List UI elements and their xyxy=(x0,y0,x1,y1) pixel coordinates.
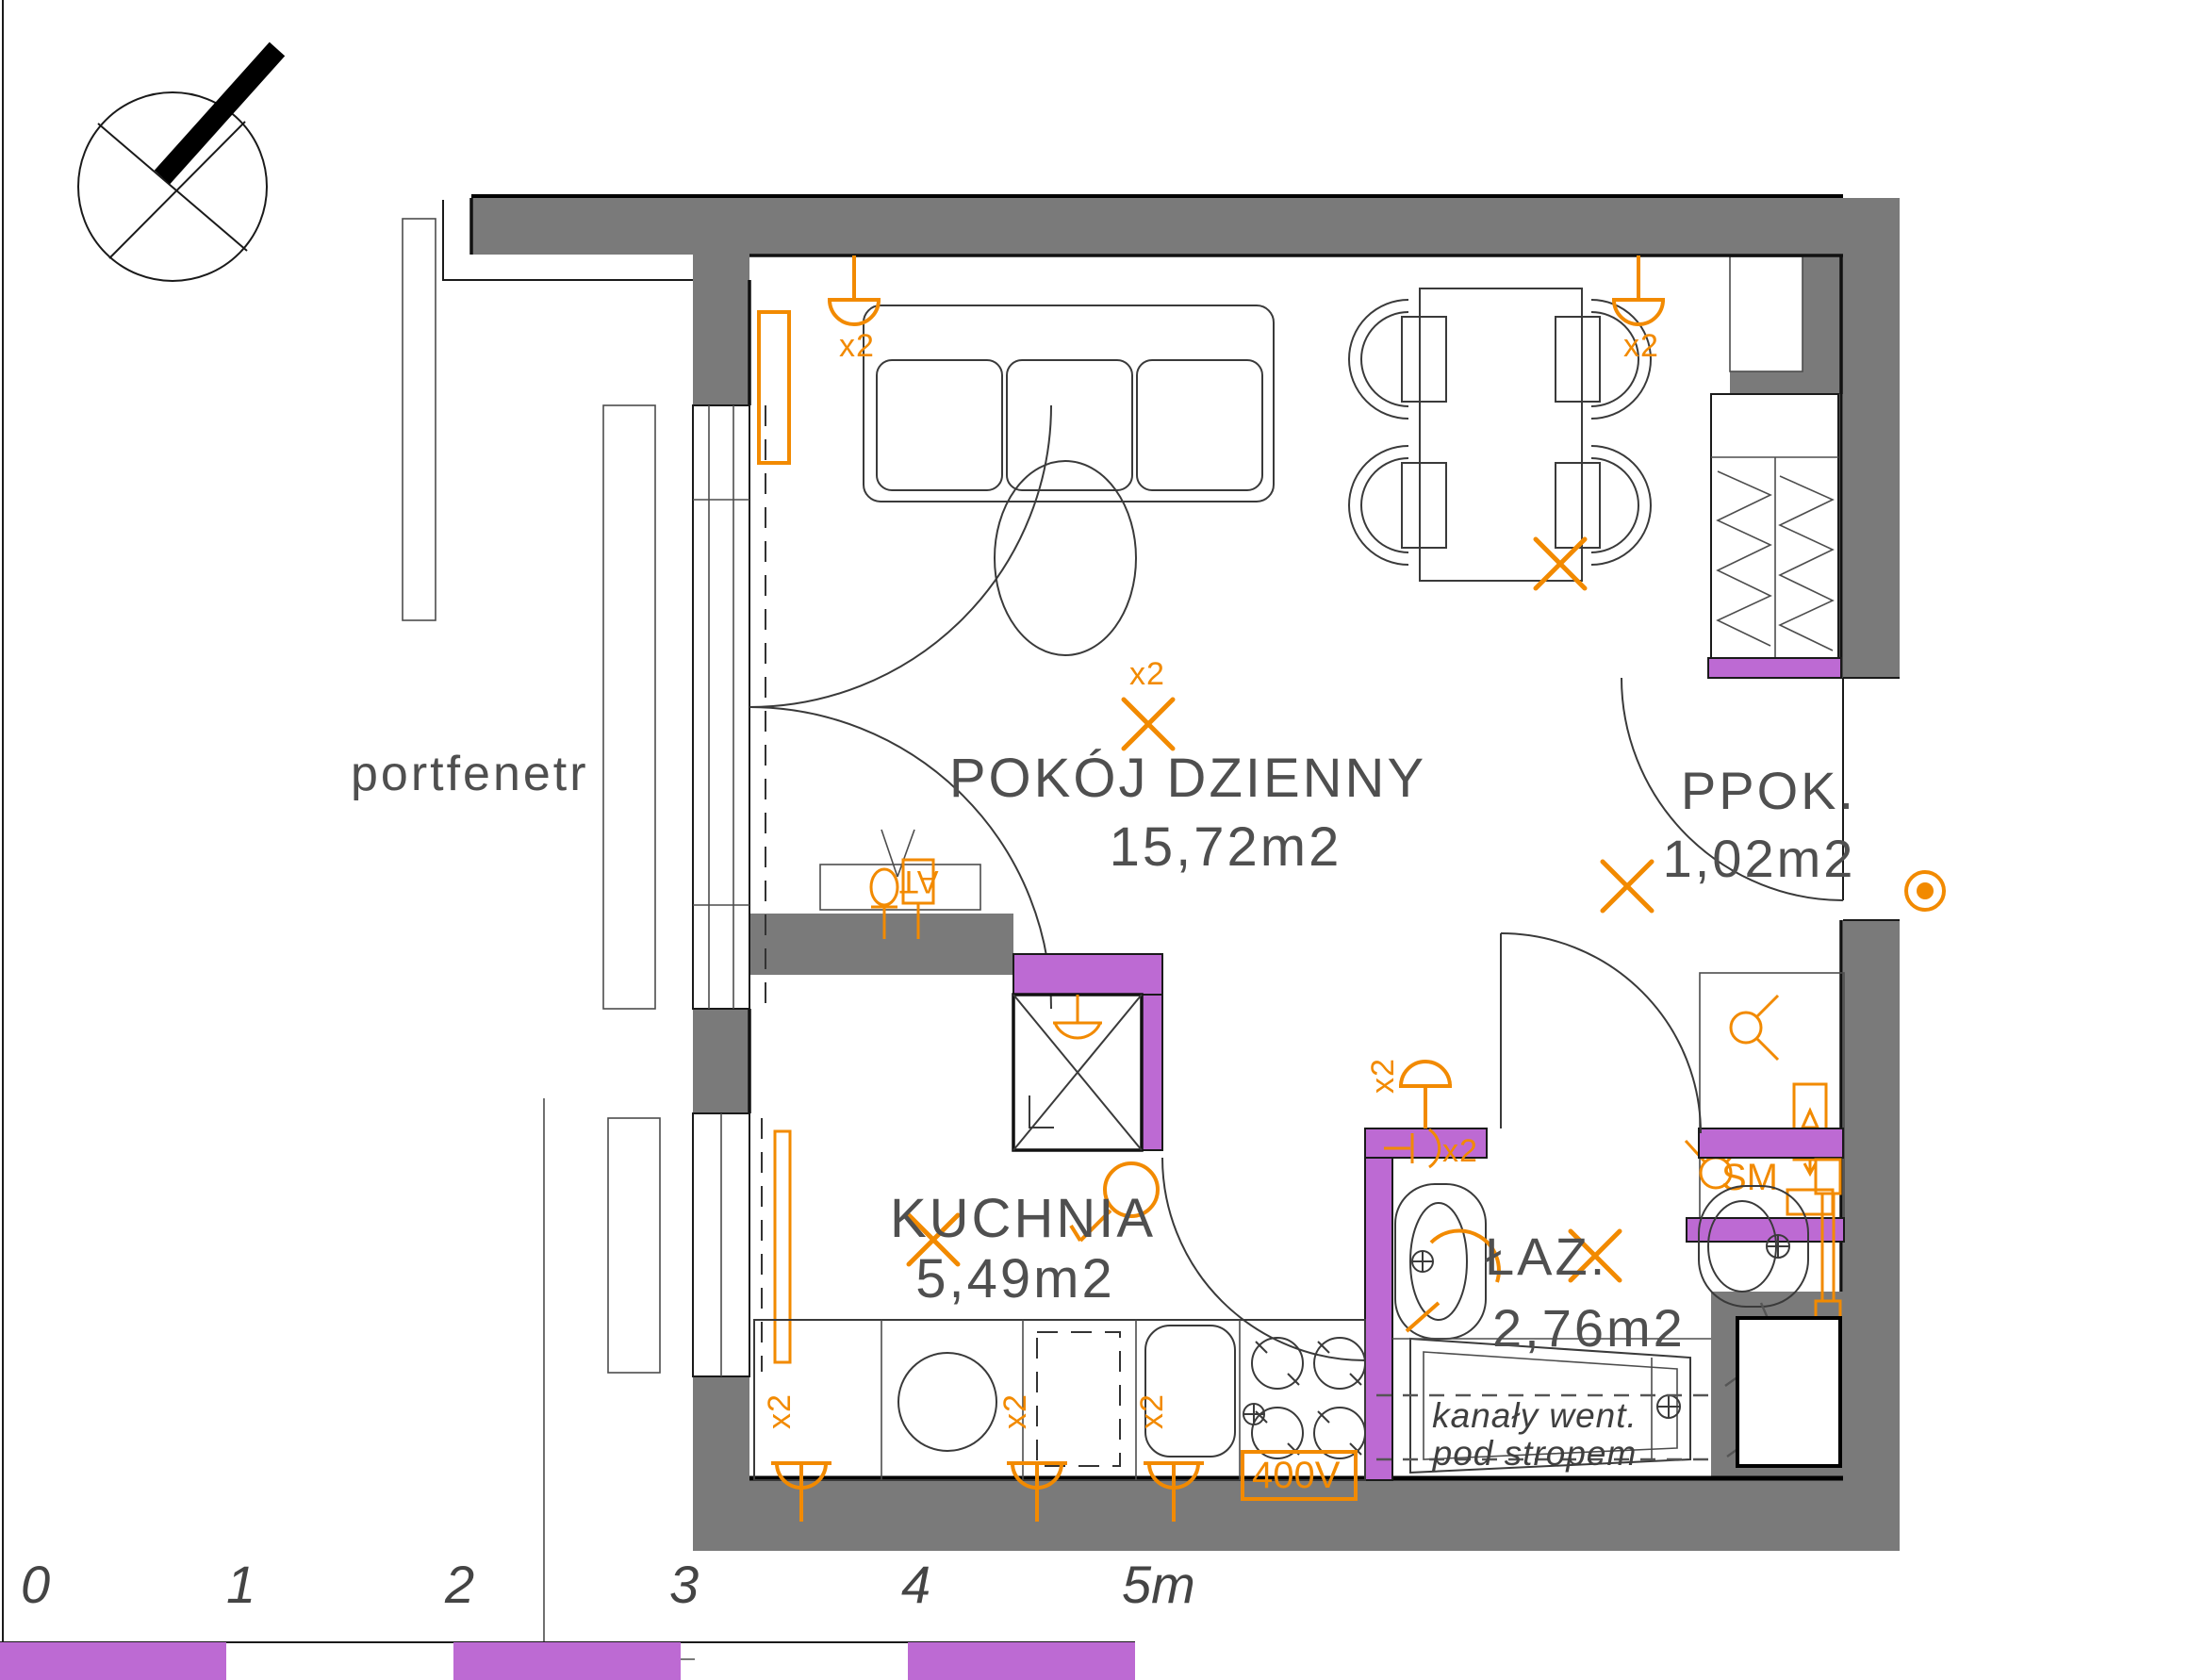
wall-lamp-icon xyxy=(828,255,881,324)
socket-multiplier-label: x2 xyxy=(997,1393,1033,1429)
electrical-cabinet: SM xyxy=(1686,973,1844,1242)
room-label-hall: PPOK. xyxy=(1681,761,1856,820)
room-area-bath: 2,76m2 xyxy=(1492,1298,1686,1358)
scale-tick: 3 xyxy=(669,1555,699,1614)
vent-annotation-line2: pod stropem xyxy=(1432,1434,1638,1473)
room-label-kitchen: KUCHNIA xyxy=(890,1188,1156,1249)
scale-tick: 0 xyxy=(21,1555,50,1614)
wall-strip-purple xyxy=(1708,658,1841,678)
floorplan-drawing: portfenetr xyxy=(0,0,2206,1680)
sink xyxy=(1145,1326,1235,1457)
stove-socket-label: 400V xyxy=(1252,1455,1341,1496)
kitchen-door-arc xyxy=(1162,1158,1365,1360)
kitchen-window xyxy=(608,1113,790,1376)
ceiling-light-icon xyxy=(1124,700,1173,749)
window-label: portfenetr xyxy=(351,747,589,801)
doorbell-icon xyxy=(1906,872,1944,910)
stove xyxy=(1252,1338,1365,1458)
light-multiplier-label: x2 xyxy=(1129,656,1165,692)
wall-lamp-icon xyxy=(1053,995,1102,1038)
room-area-kitchen: 5,49m2 xyxy=(915,1248,1114,1309)
room-label-living: POKÓJ DZIENNY xyxy=(949,748,1426,809)
scale-tick: 1 xyxy=(226,1555,255,1614)
radiator-living-icon xyxy=(759,312,789,463)
wall-lamp-icon xyxy=(1612,255,1665,324)
lamp-multiplier-label: x2 xyxy=(1623,328,1659,364)
dining-chairs xyxy=(1349,300,1651,565)
antenna-outlet-label: AT xyxy=(898,864,939,899)
scale-tick: 4 xyxy=(901,1555,930,1614)
washing-machine xyxy=(898,1353,996,1451)
toilet xyxy=(1699,1186,1808,1307)
room-area-living: 15,72m2 xyxy=(1110,816,1342,878)
north-arrow-icon xyxy=(78,49,277,281)
sofa xyxy=(864,305,1274,502)
lamp-multiplier-label: x2 xyxy=(839,328,875,364)
smoke-detector-label: SM xyxy=(1721,1157,1778,1198)
vent-annotation-line1: kanały went. xyxy=(1432,1396,1638,1435)
vent-shaft xyxy=(1737,1318,1840,1466)
room-area-hall: 1,02m2 xyxy=(1663,829,1856,888)
ceiling-light-icon xyxy=(1603,862,1652,911)
bathroom-door xyxy=(1501,933,1701,1133)
radiator-kitchen-icon xyxy=(775,1131,790,1362)
dining-table xyxy=(1420,288,1582,581)
lamp-multiplier-label: x2 xyxy=(1442,1133,1478,1169)
washbasin xyxy=(1395,1184,1499,1339)
scale-tick: 2 xyxy=(444,1555,474,1614)
socket-multiplier-label: x2 xyxy=(1134,1393,1170,1429)
scale-bar: 0 1 2 3 4 5m xyxy=(0,1555,1195,1680)
socket-multiplier-label: x2 xyxy=(762,1393,798,1429)
room-label-bath: ŁAZ. xyxy=(1485,1227,1607,1286)
floorplan-page: portfenetr xyxy=(0,0,2206,1680)
wall-lamp-icon xyxy=(1399,1062,1452,1128)
scale-tick: 5m xyxy=(1122,1555,1195,1614)
flue-shaft xyxy=(1013,954,1162,1150)
lamp-multiplier-label: x2 xyxy=(1365,1058,1401,1094)
dishwasher xyxy=(1037,1332,1120,1466)
wall-notch xyxy=(1730,256,1803,371)
wardrobe xyxy=(1708,394,1841,678)
